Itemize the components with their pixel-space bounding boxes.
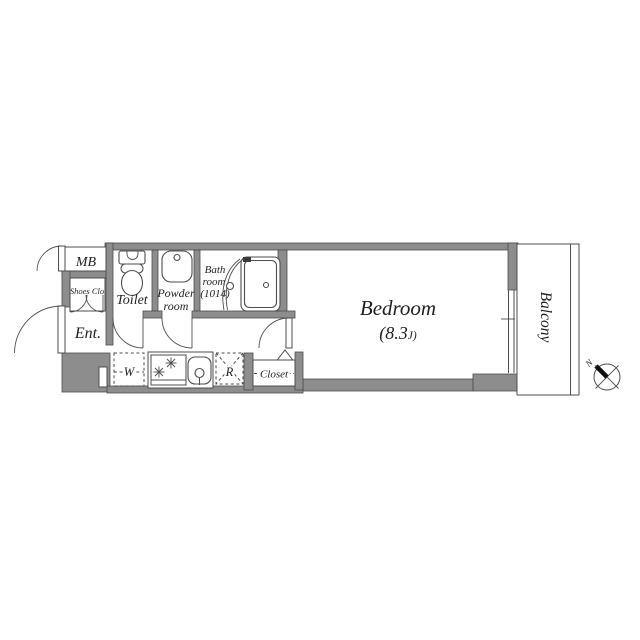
washer-label: W xyxy=(124,365,136,379)
refrigerator-space: R xyxy=(216,353,243,384)
wall-segment xyxy=(105,243,518,250)
door-arc xyxy=(162,318,192,348)
room-powder: Powder room xyxy=(156,251,195,348)
floorplan-canvas: Balcony MB Shoes Clo Ent. xyxy=(0,0,640,640)
mb-label: MB xyxy=(75,255,97,270)
door-arc xyxy=(15,306,62,353)
floorplan-page: Balcony MB Shoes Clo Ent. xyxy=(0,0,640,640)
refrigerator-label: R xyxy=(225,365,234,379)
wall-segment xyxy=(106,243,113,345)
bath-label-line2: room xyxy=(203,276,226,288)
folding-door-icon xyxy=(277,350,294,361)
compass-north-label: N xyxy=(583,357,596,370)
kitchen-counter xyxy=(148,352,213,388)
room-closet: Closet xyxy=(253,350,295,386)
bedroom-size-label: (8.3J) xyxy=(379,323,417,344)
door-handle-icon xyxy=(227,283,234,290)
powder-label-line1: Powder xyxy=(156,286,195,300)
bath-label-line3: (1014) xyxy=(200,288,230,300)
wall-segment xyxy=(508,243,517,290)
bedroom-window xyxy=(501,290,515,373)
balcony-label: Balcony xyxy=(537,292,554,343)
sink-icon xyxy=(188,357,211,385)
washbasin-icon xyxy=(162,251,192,282)
burner-icon xyxy=(166,358,177,369)
door-arc xyxy=(113,318,143,348)
toilet-icon xyxy=(119,251,145,296)
wall-segment xyxy=(194,250,200,311)
washer-space: W xyxy=(114,353,144,386)
powder-label-line2: room xyxy=(164,299,189,313)
burner-icon xyxy=(154,367,165,378)
bath-label-line1: Bath xyxy=(205,264,226,276)
wall-segment xyxy=(473,374,518,391)
bedroom-label: Bedroom xyxy=(360,296,436,320)
room-toilet: Toilet xyxy=(113,251,149,348)
room-bath: Bath room (1014) xyxy=(200,257,280,311)
entrance-door-leaf xyxy=(58,306,65,353)
wall-segment xyxy=(62,271,70,307)
wall-segment xyxy=(244,353,253,390)
wall-segment xyxy=(303,379,473,391)
wall-segment xyxy=(295,352,303,390)
compass-icon: N xyxy=(583,357,620,390)
bedroom-door-leaf xyxy=(286,318,292,348)
bathtub-icon xyxy=(241,257,280,311)
room-mb: MB xyxy=(37,246,106,271)
door-arc xyxy=(259,318,289,348)
wall-segment xyxy=(192,311,295,318)
room-balcony: Balcony xyxy=(517,244,579,395)
wall-segment xyxy=(143,311,162,318)
mb-door-leaf xyxy=(59,246,66,271)
shoes-closet-label: Shoes Clo xyxy=(70,286,104,296)
entrance-niche xyxy=(99,367,107,387)
kitchen-area: W R xyxy=(114,352,243,388)
closet-label: Closet xyxy=(260,369,289,381)
wall-segment xyxy=(152,250,158,311)
entrance-label: Ent. xyxy=(74,325,101,342)
toilet-label: Toilet xyxy=(116,293,148,308)
bath-faucet-icon xyxy=(243,257,251,262)
room-shoes-closet: Shoes Clo xyxy=(70,278,105,312)
